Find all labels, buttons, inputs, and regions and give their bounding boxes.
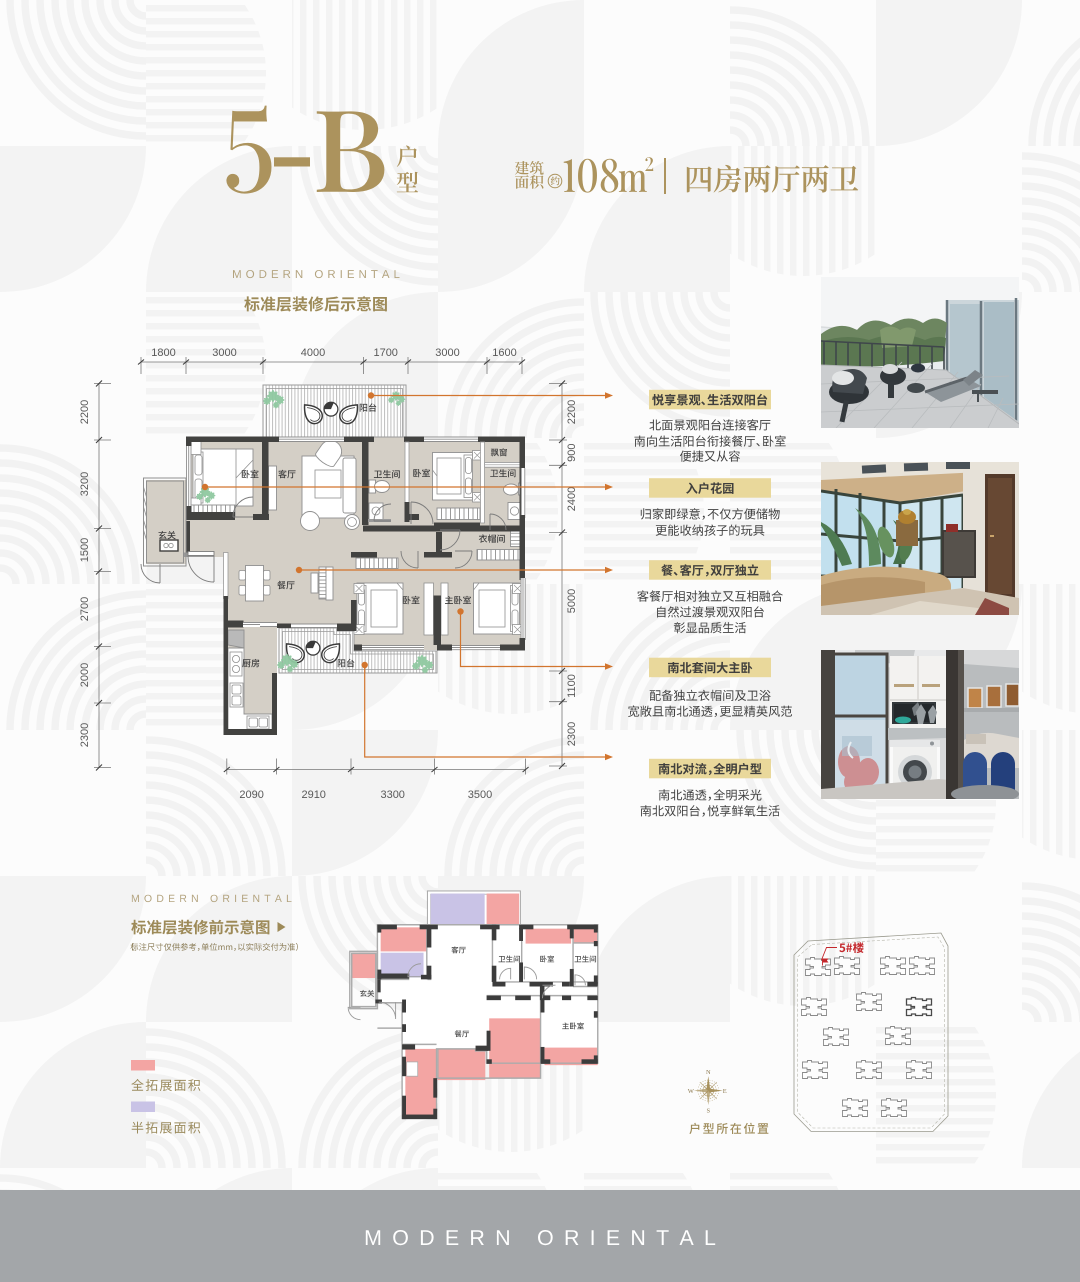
svg-text:2000: 2000 xyxy=(79,663,91,687)
svg-text:1700: 1700 xyxy=(373,347,397,359)
svg-text:N: N xyxy=(706,1069,711,1076)
svg-text:1800: 1800 xyxy=(151,347,175,359)
svg-text:3300: 3300 xyxy=(380,789,404,801)
svg-text:E: E xyxy=(723,1088,727,1095)
svg-text:2200: 2200 xyxy=(566,400,578,424)
svg-text:S: S xyxy=(706,1108,710,1115)
svg-text:1600: 1600 xyxy=(492,347,516,359)
svg-text:3500: 3500 xyxy=(468,789,492,801)
svg-text:2910: 2910 xyxy=(301,789,325,801)
svg-text:3000: 3000 xyxy=(212,347,236,359)
svg-text:2300: 2300 xyxy=(79,723,91,747)
svg-text:4000: 4000 xyxy=(301,347,325,359)
svg-text:W: W xyxy=(688,1088,695,1095)
svg-text:2200: 2200 xyxy=(79,400,91,424)
svg-text:3000: 3000 xyxy=(435,347,459,359)
svg-text:900: 900 xyxy=(566,444,578,462)
svg-text:2400: 2400 xyxy=(566,487,578,511)
svg-text:1500: 1500 xyxy=(79,538,91,562)
svg-text:5000: 5000 xyxy=(566,589,578,613)
svg-text:2300: 2300 xyxy=(566,722,578,746)
svg-text:2090: 2090 xyxy=(239,789,263,801)
svg-text:3200: 3200 xyxy=(79,472,91,496)
svg-text:1100: 1100 xyxy=(566,674,578,698)
svg-text:2700: 2700 xyxy=(79,597,91,621)
